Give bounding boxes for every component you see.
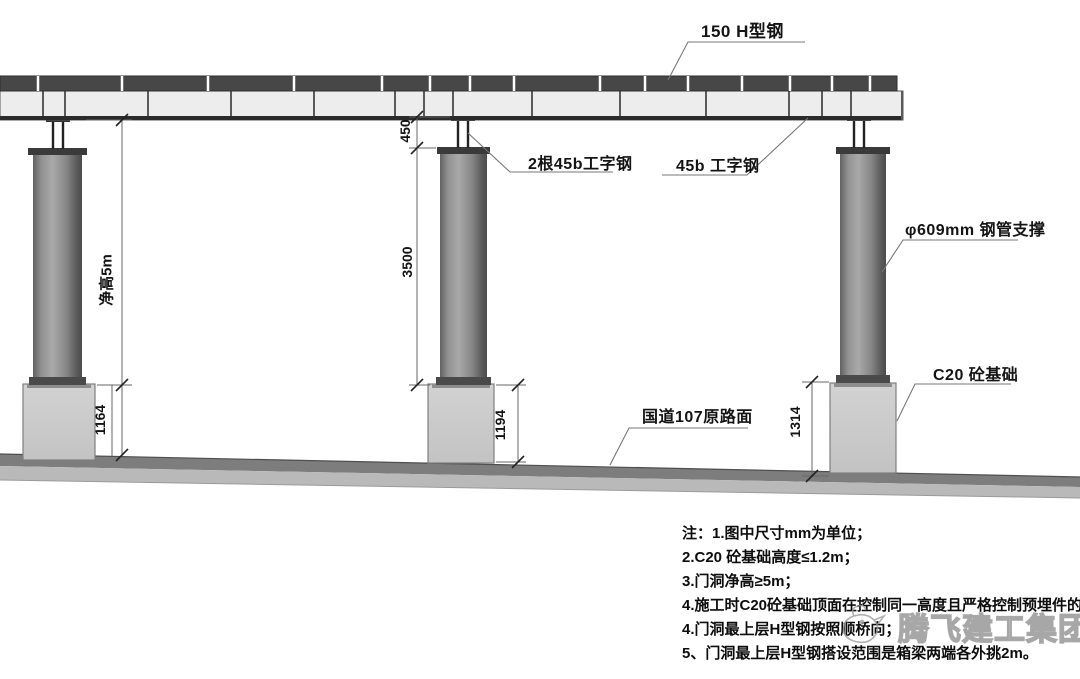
note-line-1: 注：1.图中尺寸mm为单位；	[682, 522, 1080, 546]
h-steel-top-band	[0, 76, 897, 91]
label-h-steel: 150 H型钢	[701, 17, 784, 42]
note-line-4: 4.施工时C20砼基础顶面在控制同一高度且严格控制预埋件的位置；	[682, 594, 1080, 618]
dim-clear-height: 净高5m	[96, 254, 117, 306]
dim-jack-height: 450	[397, 119, 413, 142]
note-line-5: 4.门洞最上层H型钢按照顺桥向；	[682, 618, 1080, 642]
pipe-column-center	[436, 118, 491, 385]
dim-foundation-center: 1194	[492, 410, 508, 440]
label-road: 国道107原路面	[642, 403, 753, 427]
note-line-2: 2.C20 砼基础高度≤1.2m；	[682, 546, 1080, 570]
note-line-3: 3.门洞净高≥5m；	[682, 570, 1080, 594]
foundation-right	[830, 383, 896, 473]
pipe-column-right	[836, 118, 890, 383]
note-line-6: 5、门洞最上层H型钢搭设范围是箱梁两端各外挑2m。	[682, 642, 1080, 666]
drawing-canvas: 150 H型钢 2根45b工字钢 45b 工字钢 φ609mm 钢管支撑 C20…	[0, 0, 1080, 679]
foundation-center	[428, 384, 494, 463]
label-pipe-support: φ609mm 钢管支撑	[905, 216, 1046, 240]
pipe-column-left	[28, 119, 87, 385]
label-foundation: C20 砼基础	[933, 361, 1018, 385]
label-double-i-beam: 2根45b工字钢	[528, 150, 632, 174]
foundation-left	[23, 384, 95, 460]
label-i-beam: 45b 工字钢	[676, 152, 760, 176]
dim-foundation-right: 1314	[787, 406, 803, 437]
road-surface	[0, 454, 1080, 498]
i-beam-deck	[0, 91, 903, 120]
dim-foundation-left: 1164	[92, 405, 108, 435]
dim-column-height: 3500	[399, 246, 415, 277]
notes-block: 注：1.图中尺寸mm为单位； 2.C20 砼基础高度≤1.2m； 3.门洞净高≥…	[682, 522, 1080, 666]
